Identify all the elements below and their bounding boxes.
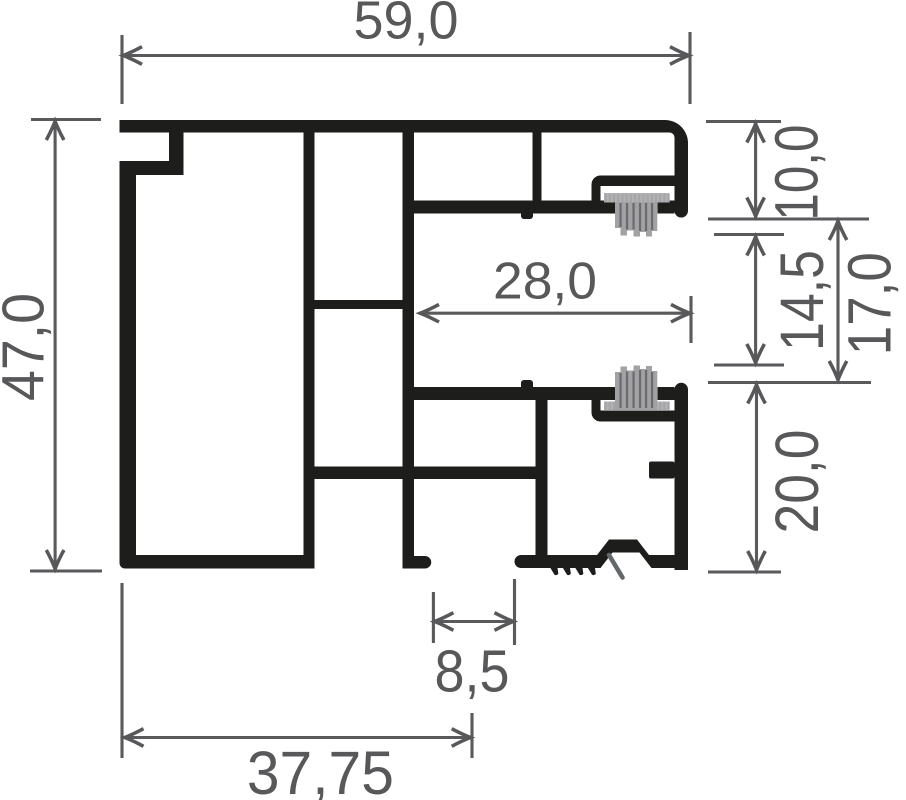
svg-text:37,75: 37,75 — [247, 739, 394, 800]
svg-text:8,5: 8,5 — [435, 638, 510, 704]
svg-text:17,0: 17,0 — [836, 252, 904, 355]
svg-text:47,0: 47,0 — [0, 293, 57, 401]
svg-text:20,0: 20,0 — [763, 430, 831, 534]
svg-text:14,5: 14,5 — [768, 250, 836, 351]
svg-text:28,0: 28,0 — [493, 253, 597, 311]
svg-text:59,0: 59,0 — [354, 0, 459, 51]
svg-text:10,0: 10,0 — [763, 125, 831, 221]
